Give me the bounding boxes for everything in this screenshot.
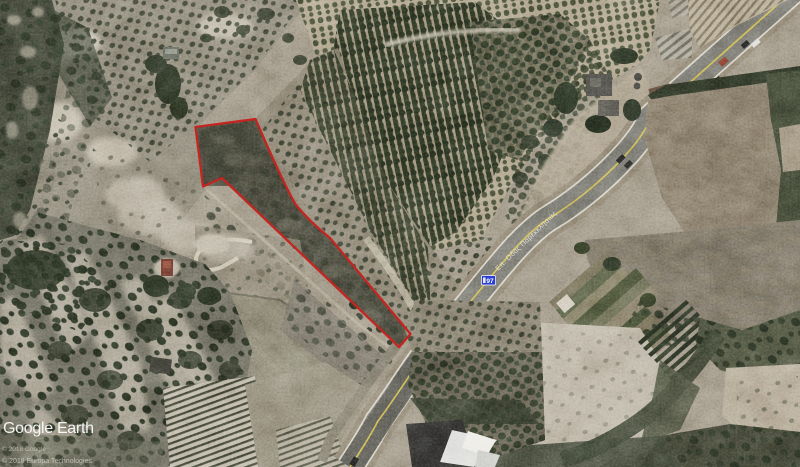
- svg-text:© 2018 Europa Technologies: © 2018 Europa Technologies: [2, 457, 92, 465]
- svg-text:Google Earth: Google Earth: [3, 420, 94, 437]
- svg-text:97: 97: [486, 278, 494, 285]
- svg-text:K: K: [290, 117, 384, 263]
- svg-text:© 2018 Google: © 2018 Google: [2, 445, 46, 453]
